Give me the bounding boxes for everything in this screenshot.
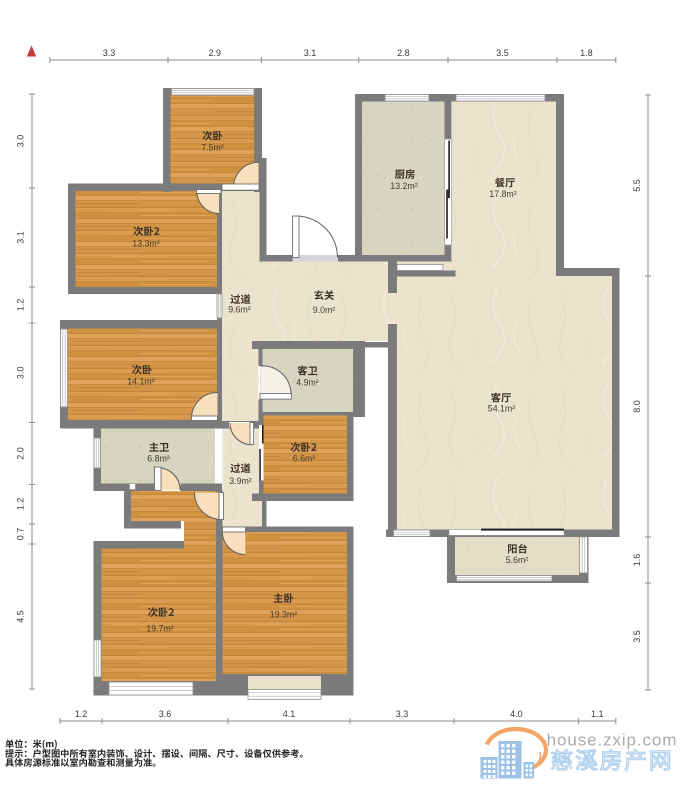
svg-text:9.0m²: 9.0m² (313, 305, 336, 315)
svg-text:3.5: 3.5 (496, 48, 509, 58)
svg-text:1.2: 1.2 (16, 498, 26, 511)
svg-text:3.0: 3.0 (16, 135, 26, 148)
svg-text:2.9: 2.9 (208, 48, 221, 58)
svg-text:3.0: 3.0 (16, 367, 26, 380)
svg-text:3.9m²: 3.9m² (229, 476, 252, 486)
svg-text:3.1: 3.1 (304, 48, 317, 58)
svg-text:9.6m²: 9.6m² (228, 305, 251, 315)
svg-text:2.0: 2.0 (16, 447, 26, 460)
svg-text:1.6: 1.6 (632, 554, 642, 567)
svg-text:1.2: 1.2 (16, 299, 26, 312)
svg-text:house.zxip.com: house.zxip.com (547, 731, 678, 750)
svg-text:13.2m²: 13.2m² (390, 181, 417, 191)
svg-text:19.3m²: 19.3m² (270, 610, 297, 620)
svg-text:3.3: 3.3 (103, 48, 116, 58)
svg-text:6.8m²: 6.8m² (147, 454, 170, 464)
svg-text:17.8m²: 17.8m² (489, 189, 516, 199)
svg-text:1.8: 1.8 (580, 48, 593, 58)
svg-text:4.9m²: 4.9m² (296, 378, 319, 388)
svg-text:8.0: 8.0 (632, 400, 642, 413)
svg-text:6.6m²: 6.6m² (293, 454, 316, 464)
svg-text:0.7: 0.7 (16, 528, 26, 541)
svg-text:5.5: 5.5 (632, 179, 642, 192)
svg-text:5.6m²: 5.6m² (506, 555, 529, 565)
svg-text:1.1: 1.1 (591, 709, 604, 719)
svg-text:14.1m²: 14.1m² (127, 377, 154, 387)
svg-text:54.1m²: 54.1m² (488, 404, 515, 414)
svg-text:4.5: 4.5 (16, 610, 26, 623)
svg-text:3.6: 3.6 (159, 709, 172, 719)
svg-text:3.5: 3.5 (632, 630, 642, 643)
svg-text:7.5m²: 7.5m² (201, 143, 224, 153)
svg-text:3.1: 3.1 (16, 231, 26, 244)
svg-text:13.3m²: 13.3m² (132, 239, 159, 249)
svg-text:4.1: 4.1 (283, 709, 296, 719)
svg-text:19.7m²: 19.7m² (146, 624, 173, 634)
svg-text:2.8: 2.8 (397, 48, 410, 58)
svg-text:4.0: 4.0 (510, 709, 523, 719)
svg-text:3.3: 3.3 (396, 709, 409, 719)
svg-text:1.2: 1.2 (75, 709, 88, 719)
